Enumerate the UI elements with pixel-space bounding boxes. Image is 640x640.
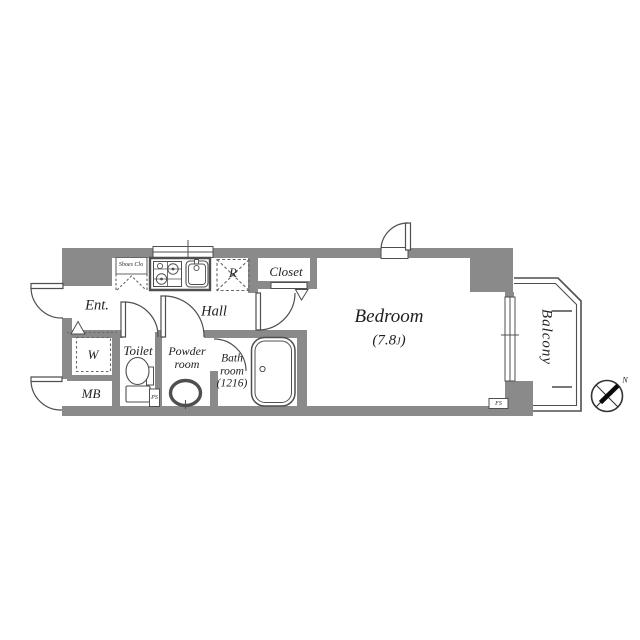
label-bath-line3: (1216) (217, 377, 248, 390)
bedroom-size-close: ) (401, 333, 406, 349)
wall-bottom-right-block (505, 381, 533, 408)
toilet-door-arc (125, 302, 158, 337)
wall-top (62, 248, 513, 258)
wall-bath-bedroom (297, 330, 307, 406)
powder-door-arc (165, 296, 204, 337)
closet-swing-marker (296, 290, 309, 301)
shoes-closet-fold (117, 276, 146, 290)
label-entrance: Ent. (85, 298, 109, 315)
mb-door-arc (31, 381, 62, 410)
entrance-step-marker (71, 322, 85, 335)
label-toilet: Toilet (123, 343, 152, 359)
label-powder-room: Powder room (168, 345, 205, 371)
label-refrigerator: R (229, 265, 237, 281)
toilet-bowl (126, 358, 149, 385)
label-bath-line1: Bath (217, 352, 248, 365)
entrance-door-arc (31, 288, 63, 318)
bedroom-door-leaf (256, 293, 261, 330)
bedroom-door-arc (258, 293, 295, 330)
stove-burner-2-dot (160, 278, 163, 281)
label-closet: Closet (269, 264, 302, 280)
bedroom-north-door-arc (381, 223, 408, 250)
label-bedroom-size: (7.8J) (372, 333, 405, 350)
toilet-door-leaf (121, 302, 126, 337)
wall-top-left-block (62, 248, 112, 286)
wall-bottom (62, 406, 533, 416)
wall-hall-south-c (204, 330, 307, 338)
wall-left (62, 318, 72, 379)
label-shoes-closet: Shoes Clo (119, 262, 143, 268)
kitchen (150, 258, 210, 290)
entrance-door-leaf (31, 284, 63, 289)
stove-burner-1-dot (172, 268, 175, 271)
label-bath-line2: room (217, 365, 248, 378)
label-powder-line2: room (168, 358, 205, 371)
bedroom-north-door-leaf (406, 223, 411, 250)
label-meter-box: MB (82, 386, 101, 402)
mb-door-leaf (31, 377, 62, 382)
label-pipe-space: PS (151, 394, 158, 401)
wall-w-mb (67, 375, 112, 381)
label-hall: Hall (201, 304, 227, 321)
bathtub-inner (255, 341, 292, 403)
floorplan: Ent. Hall Shoes Clo R Closet Bedroom (7.… (0, 0, 640, 640)
powder-door-leaf (161, 296, 166, 337)
compass (592, 381, 623, 412)
toilet-tank (126, 386, 150, 402)
bedroom-north-opening (381, 248, 408, 259)
label-washer: W (88, 347, 99, 363)
label-balcony: Balcony (538, 309, 555, 365)
label-fs-shaft: FS (495, 401, 502, 407)
wall-w-toilet (112, 332, 120, 406)
label-north: N (622, 376, 627, 385)
bedroom-size-open: (7.8 (372, 333, 396, 349)
faucet-stem (195, 260, 199, 265)
wall-pillar-top-right (470, 248, 513, 292)
label-bath-room: Bath room (1216) (217, 352, 248, 390)
bathtub-faucet (260, 366, 265, 371)
faucet-knob (194, 265, 199, 270)
closet-opening (271, 283, 307, 289)
label-bedroom: Bedroom (355, 306, 424, 328)
